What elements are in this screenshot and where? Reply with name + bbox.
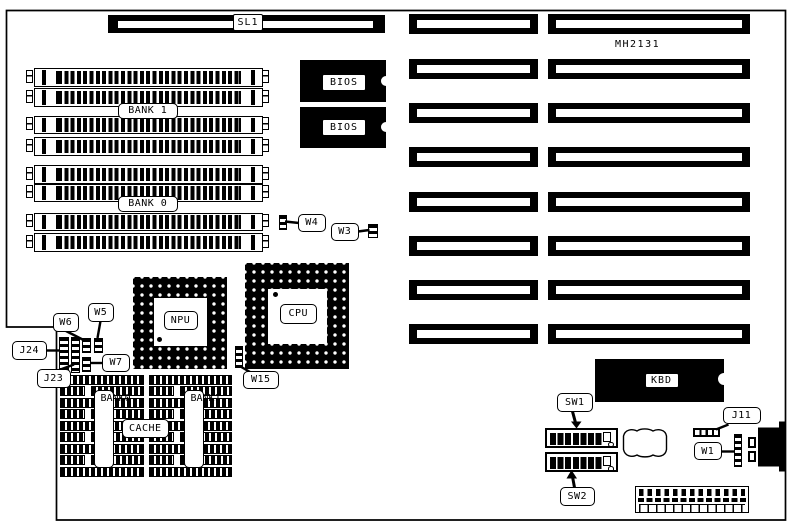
board-outline (7, 11, 786, 521)
jumper-w4-label: W4 (298, 214, 327, 233)
header-j24-label: J24 (12, 341, 47, 360)
header-j23-label: J23 (37, 369, 71, 388)
dip-switch-sw1-label: SW1 (557, 393, 593, 412)
jumper-w1-label: W1 (694, 442, 722, 460)
kbd-chip-label: KBD (645, 373, 679, 389)
unpopulated-footprint-outline (624, 429, 667, 457)
memory-bank1-label: BANK 1 (118, 103, 179, 119)
jumper-w15-label: W15 (243, 371, 279, 389)
jumper-w6-label: W6 (53, 313, 79, 332)
cpu-label: CPU (280, 304, 318, 324)
bios-chip-2-label: BIOS (322, 119, 366, 136)
bios-chip-1-label: BIOS (322, 74, 366, 91)
header-j11-label: J11 (723, 407, 761, 425)
jumper-w3-label: W3 (331, 223, 360, 242)
jumper-w7-label: W7 (102, 354, 130, 373)
diagram-line-layer (0, 0, 791, 528)
cache-bank0-label: BANK0 (94, 390, 114, 469)
memory-bank0-label: BANK 0 (118, 196, 179, 212)
slot-sl1-label: SL1 (233, 14, 263, 32)
keyboard-din-connector (758, 422, 786, 472)
npu-label: NPU (164, 311, 198, 330)
jumper-w5-label: W5 (88, 303, 114, 322)
dip-switch-sw2-label: SW2 (560, 487, 595, 506)
label-pointer-lines (46, 222, 735, 452)
switch-pointer-arrows (567, 412, 582, 488)
cache-label: CACHE (122, 419, 170, 438)
cache-bank1-label: BANK1 (184, 390, 204, 469)
motherboard-diagram: SL1 MH2131 BIOS BIOS BANK 1 BANK 0 (0, 0, 791, 528)
